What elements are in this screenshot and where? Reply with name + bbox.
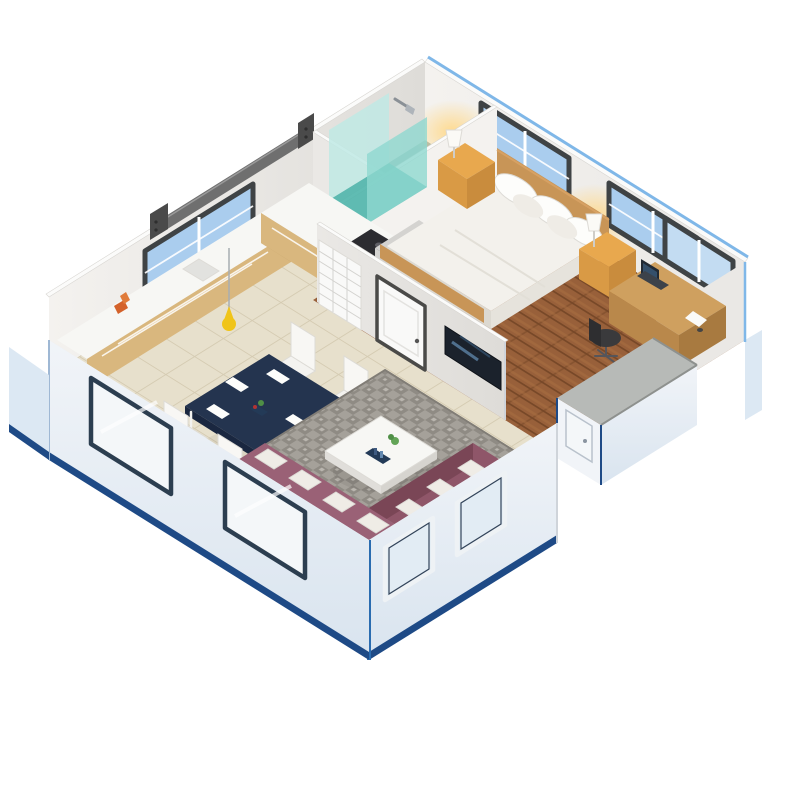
centerpiece-fruit — [253, 405, 257, 409]
beam-bolt — [154, 220, 157, 223]
beam-bolt — [304, 135, 307, 138]
decor-sprig — [388, 434, 394, 440]
centerpiece-greens — [258, 400, 264, 406]
table-lamp-shade — [586, 214, 602, 231]
floor-plan-render — [0, 0, 800, 800]
mouse — [697, 328, 703, 332]
isometric-house-scene — [0, 0, 800, 800]
decor-bottle — [380, 451, 383, 458]
door-handle — [415, 339, 419, 343]
strip-face — [745, 330, 762, 420]
decor-bottle — [374, 448, 377, 455]
table-lamp-shade — [446, 130, 462, 147]
pendant-bulb — [222, 317, 236, 331]
porch-door-handle — [583, 439, 587, 443]
beam-bolt — [154, 228, 157, 231]
beam-bolt — [304, 127, 307, 130]
